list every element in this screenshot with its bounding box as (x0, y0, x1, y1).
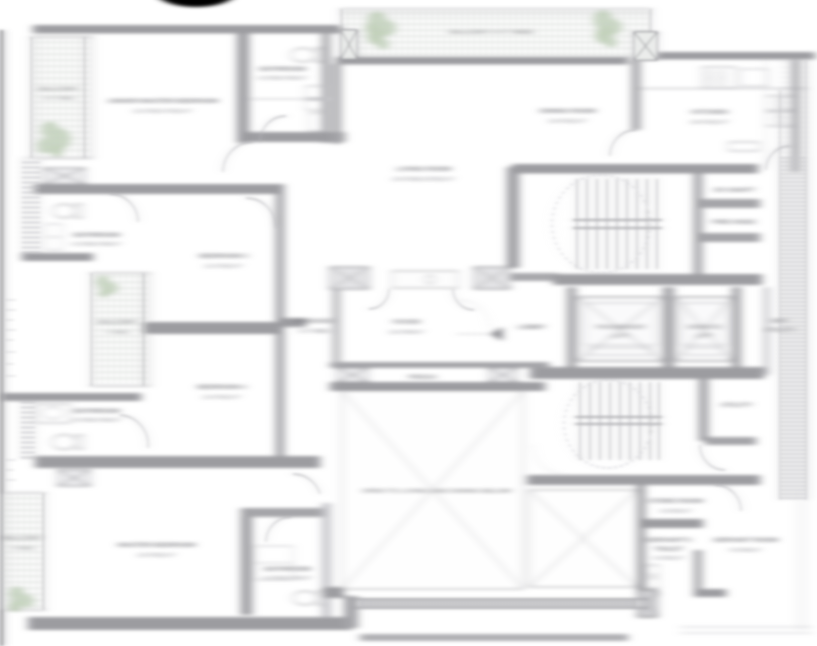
svg-text:11'-3"X13'-3"X12'-0": 11'-3"X13'-3"X12'-0" (134, 109, 192, 115)
svg-text:BEDROOM 3: BEDROOM 3 (200, 253, 248, 260)
svg-text:6'-0"X8'-0"X8'-0": 6'-0"X8'-0"X8'-0" (73, 418, 121, 424)
svg-text:LOBBY: LOBBY (518, 324, 546, 331)
svg-text:SERVICE: SERVICE (687, 324, 722, 331)
svg-text:6'-0"X8'-0"X8'-0": 6'-0"X8'-0"X8'-0" (264, 576, 312, 582)
svg-text:3'-6" WIDE: 3'-6" WIDE (299, 329, 330, 335)
svg-text:4'-6"X6'-0": 4'-6"X6'-0" (661, 509, 692, 515)
svg-text:11'-3"X12'-0": 11'-3"X12'-0" (205, 264, 242, 270)
svg-text:POOJA: POOJA (409, 374, 437, 381)
svg-text:PASSAGE: PASSAGE (295, 318, 333, 325)
svg-text:12'-9"X21'-0": 12'-9"X21'-0" (138, 553, 176, 559)
svg-text:PASSENGER: PASSENGER (596, 324, 645, 331)
svg-text:KITCHEN: KITCHEN (692, 109, 728, 116)
svg-text:LIVING ROOM: LIVING ROOM (397, 166, 452, 173)
svg-text:4'-0"X6'-0": 4'-0"X6'-0" (654, 556, 685, 562)
svg-text:BATHROOM: BATHROOM (265, 566, 311, 573)
svg-text:6'-0"X8'-0"X8'-0": 6'-0"X8'-0"X8'-0" (259, 76, 307, 82)
svg-text:FIRE HOSE: FIRE HOSE (712, 219, 756, 226)
svg-text:9'-6"X8'-0": 9'-6"X8'-0" (731, 548, 762, 554)
svg-text:11'-0"X12'-0": 11'-0"X12'-0" (203, 395, 240, 401)
svg-text:BATHROOM: BATHROOM (74, 232, 120, 239)
svg-text:12'-0"X8'-6": 12'-0"X8'-6" (390, 330, 424, 336)
svg-text:TOILET: TOILET (655, 546, 684, 553)
svg-text:6'-0"X8'-0"X8'-0": 6'-0"X8'-0"X8'-0" (73, 242, 121, 248)
svg-text:JUNIOR MASTER BEDROOM: JUNIOR MASTER BEDROOM (108, 98, 218, 105)
svg-text:LIFT: LIFT (696, 333, 714, 340)
svg-text:13'-6"X18'-10"X12'-0": 13'-6"X18'-10"X12'-0" (393, 177, 455, 183)
svg-text:BEDROOM 4: BEDROOM 4 (198, 384, 246, 391)
svg-text:LIFT: LIFT (612, 333, 630, 340)
svg-text:10'-6"X12'-0": 10'-6"X12'-0" (691, 120, 729, 126)
svg-text:DINING ROOM: DINING ROOM (540, 108, 596, 115)
svg-text:BATHROOM: BATHROOM (260, 66, 306, 73)
svg-text:DV SHAFT: DV SHAFT (715, 187, 755, 194)
svg-text:OPEN TO LIVING AND DINING BELO: OPEN TO LIVING AND DINING BELOW (362, 488, 511, 495)
svg-text:13'-6"X12'-0": 13'-6"X12'-0" (549, 119, 587, 125)
svg-text:STORE ROOM: STORE ROOM (649, 498, 703, 505)
svg-text:FOYER: FOYER (393, 319, 420, 326)
svg-text:SERVANT'S: SERVANT'S (646, 537, 691, 544)
svg-text:SERVANT ROOM: SERVANT ROOM (714, 537, 778, 544)
svg-text:BATHROOM: BATHROOM (74, 408, 120, 415)
svg-text:UTILITY: UTILITY (721, 402, 752, 409)
svg-text:MASTER BEDROOM: MASTER BEDROOM (118, 542, 195, 549)
